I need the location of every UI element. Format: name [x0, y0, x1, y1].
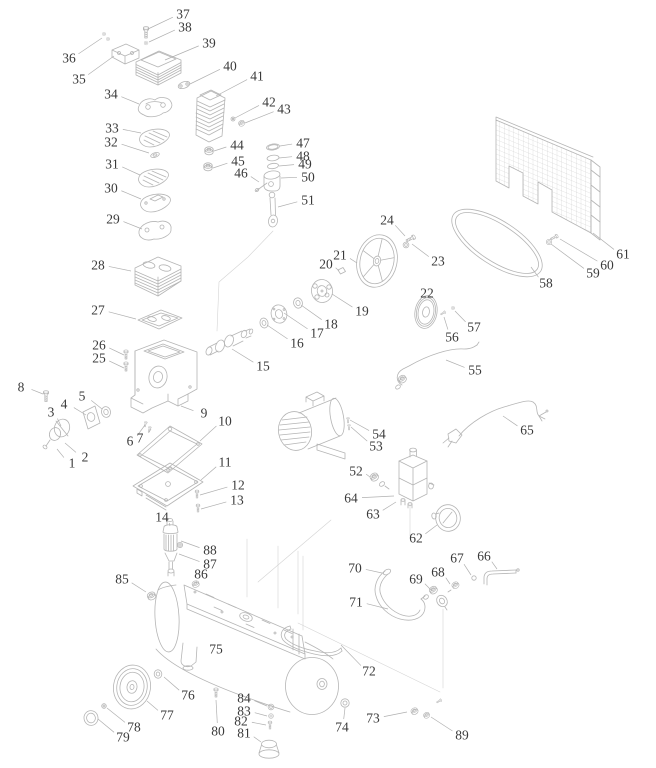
part-label-63: 63: [366, 507, 380, 522]
part-label-25: 25: [92, 351, 106, 366]
part-label-3: 3: [48, 405, 55, 420]
diagram-page: 1234567891011121314151617181920212223242…: [0, 0, 656, 768]
part-label-46: 46: [234, 166, 248, 181]
part-label-67: 67: [450, 551, 464, 566]
part-label-38: 38: [178, 20, 192, 35]
part-label-80: 80: [211, 724, 225, 739]
part-label-44: 44: [230, 138, 244, 153]
part-label-54: 54: [372, 427, 386, 442]
part-label-11: 11: [219, 455, 232, 470]
part-label-28: 28: [91, 258, 105, 273]
part-label-10: 10: [218, 414, 232, 429]
part-label-32: 32: [104, 135, 118, 150]
part-label-75: 75: [209, 642, 223, 657]
part-label-36: 36: [62, 51, 76, 66]
part-label-39: 39: [202, 36, 216, 51]
part-label-68: 68: [431, 565, 445, 580]
part-label-5: 5: [79, 389, 86, 404]
part-label-7: 7: [137, 431, 144, 446]
part-label-58: 58: [539, 276, 553, 291]
part-label-89: 89: [455, 728, 469, 743]
part-label-14: 14: [155, 510, 169, 525]
part-label-74: 74: [335, 720, 349, 735]
part-label-70: 70: [348, 561, 362, 576]
part-label-61: 61: [616, 247, 630, 262]
part-label-21: 21: [333, 248, 347, 263]
part-label-8: 8: [18, 380, 25, 395]
part-label-65: 65: [520, 423, 534, 438]
part-label-33: 33: [105, 121, 119, 136]
part-label-88: 88: [203, 543, 217, 558]
part-label-26: 26: [92, 338, 106, 353]
part-label-42: 42: [262, 95, 276, 110]
part-label-72: 72: [362, 664, 376, 679]
part-label-52: 52: [349, 464, 363, 479]
part-label-50: 50: [301, 170, 315, 185]
part-label-1: 1: [69, 456, 76, 471]
part-label-34: 34: [104, 87, 118, 102]
part-label-51: 51: [301, 193, 315, 208]
part-label-79: 79: [116, 730, 130, 745]
part-label-76: 76: [181, 688, 195, 703]
part-label-41: 41: [250, 69, 264, 84]
part-label-24: 24: [380, 213, 394, 228]
part-label-27: 27: [91, 303, 105, 318]
part-label-31: 31: [105, 157, 119, 172]
part-label-20: 20: [319, 257, 333, 272]
part-label-13: 13: [230, 493, 244, 508]
part-label-12: 12: [231, 478, 245, 493]
part-label-56: 56: [445, 330, 459, 345]
part-label-40: 40: [223, 59, 237, 74]
part-label-60: 60: [600, 258, 614, 273]
part-label-2: 2: [82, 450, 89, 465]
part-label-87: 87: [203, 557, 217, 572]
part-label-71: 71: [349, 595, 363, 610]
part-label-59: 59: [586, 266, 600, 281]
part-label-64: 64: [344, 491, 358, 506]
part-label-23: 23: [431, 254, 445, 269]
part-label-19: 19: [355, 304, 369, 319]
part-label-77: 77: [160, 708, 174, 723]
part-label-9: 9: [201, 406, 208, 421]
part-label-15: 15: [256, 359, 270, 374]
part-label-55: 55: [468, 363, 482, 378]
part-label-73: 73: [366, 711, 380, 726]
part-label-6: 6: [127, 434, 134, 449]
part-label-18: 18: [324, 317, 338, 332]
part-label-17: 17: [310, 326, 324, 341]
part-label-62: 62: [409, 531, 423, 546]
part-label-83: 83: [237, 704, 251, 719]
part-label-35: 35: [72, 72, 86, 87]
part-label-30: 30: [104, 181, 118, 196]
part-label-29: 29: [106, 212, 120, 227]
part-label-66: 66: [477, 549, 491, 564]
part-label-4: 4: [61, 397, 68, 412]
part-label-43: 43: [277, 102, 291, 117]
part-label-85: 85: [115, 572, 129, 587]
part-label-22: 22: [420, 286, 434, 301]
part-label-16: 16: [290, 336, 304, 351]
part-label-57: 57: [467, 320, 481, 335]
exploded-parts-diagram: 1234567891011121314151617181920212223242…: [0, 0, 656, 768]
part-label-69: 69: [409, 572, 423, 587]
part-label-84: 84: [237, 691, 251, 706]
